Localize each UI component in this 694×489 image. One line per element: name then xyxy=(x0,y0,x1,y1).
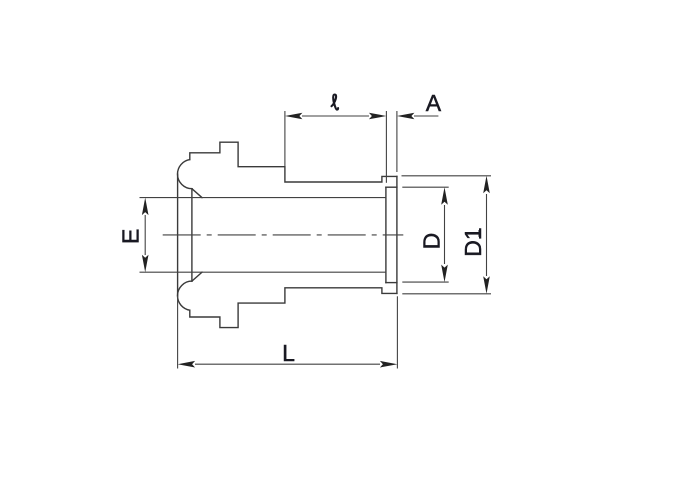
svg-text:D1: D1 xyxy=(460,227,486,256)
svg-text:L: L xyxy=(282,340,295,366)
svg-text:E: E xyxy=(118,229,144,244)
svg-text:A: A xyxy=(426,90,442,116)
svg-text:D: D xyxy=(418,233,444,250)
